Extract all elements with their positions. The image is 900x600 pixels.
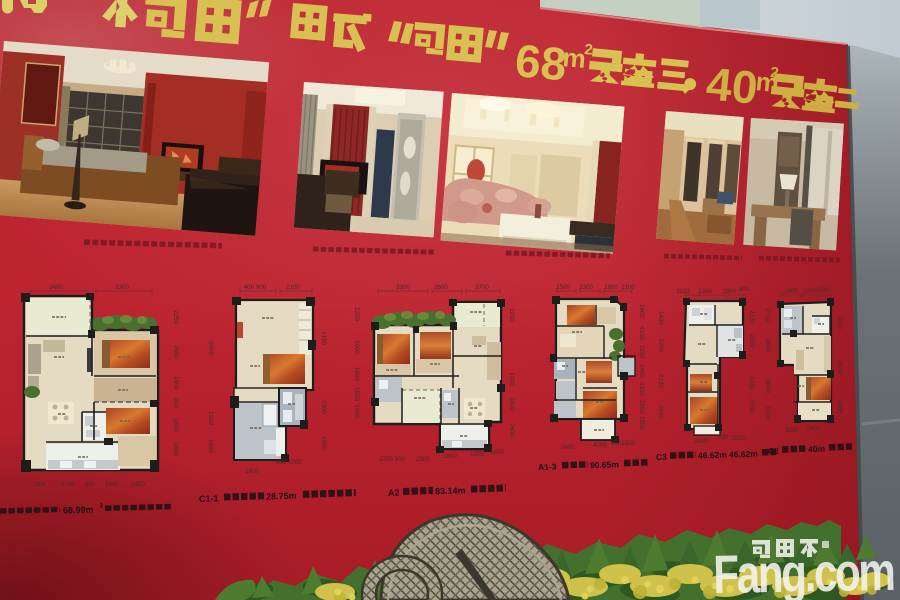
svg-text:1200: 1200 [785, 427, 799, 434]
svg-text:1300: 1300 [207, 411, 214, 425]
svg-text:8400: 8400 [836, 361, 843, 375]
svg-text:2250: 2250 [172, 310, 179, 324]
svg-text:2400: 2400 [694, 438, 708, 445]
svg-text:3400: 3400 [49, 284, 63, 291]
svg-text:3700: 3700 [475, 284, 489, 291]
svg-text:1800: 1800 [353, 367, 360, 381]
svg-text:900: 900 [172, 398, 179, 409]
svg-text:40m: 40m [808, 444, 826, 455]
svg-text:Fang.com: Fang.com [713, 542, 895, 600]
svg-text:2600: 2600 [508, 423, 515, 437]
svg-text:6001500: 6001500 [611, 440, 636, 447]
svg-text:4100: 4100 [638, 326, 645, 340]
svg-text:900: 900 [85, 481, 96, 488]
svg-text:83.14m: 83.14m [435, 485, 466, 496]
svg-text:4100: 4100 [320, 331, 327, 345]
svg-text:1400: 1400 [105, 481, 119, 488]
svg-text:2650: 2650 [748, 334, 755, 348]
svg-text:1500: 1500 [556, 284, 570, 291]
svg-text:2500: 2500 [416, 456, 430, 463]
svg-text:1500: 1500 [817, 287, 831, 294]
svg-text:3250: 3250 [657, 338, 664, 352]
svg-text:2400: 2400 [638, 364, 645, 378]
svg-text:2400: 2400 [561, 444, 575, 451]
svg-text:2200: 2200 [508, 308, 515, 322]
svg-text:68: 68 [513, 34, 569, 90]
svg-text:1500: 1500 [638, 416, 645, 430]
svg-text:1900: 1900 [722, 288, 736, 295]
svg-text:3400: 3400 [807, 425, 821, 432]
svg-text:1800: 1800 [353, 387, 360, 401]
svg-text:2130: 2130 [748, 376, 755, 390]
svg-text:2700: 2700 [764, 308, 771, 322]
svg-text:1800: 1800 [172, 442, 179, 456]
svg-text:2100: 2100 [621, 284, 635, 291]
svg-text:m: m [561, 42, 587, 74]
svg-text:600 1000: 600 1000 [276, 459, 302, 466]
svg-text:3300: 3300 [115, 284, 129, 291]
svg-text:2200: 2200 [836, 315, 843, 329]
svg-text:1200: 1200 [803, 288, 817, 295]
svg-text:C3: C3 [656, 452, 667, 462]
svg-text:90.65m: 90.65m [590, 459, 620, 470]
svg-text:2200: 2200 [353, 307, 360, 321]
svg-text:2300: 2300 [320, 400, 327, 414]
svg-text:3100: 3100 [638, 382, 645, 396]
svg-text:400 900: 400 900 [244, 284, 267, 291]
svg-text:68.99m: 68.99m [63, 505, 94, 516]
svg-text:2650: 2650 [748, 399, 755, 413]
svg-text:300: 300 [739, 286, 750, 293]
svg-text:700: 700 [718, 434, 729, 441]
svg-text:28.75m: 28.75m [266, 491, 297, 502]
svg-text:1800: 1800 [443, 453, 457, 460]
svg-text:C2: C2 [768, 446, 780, 456]
svg-text:A2: A2 [388, 488, 400, 498]
svg-text:1800: 1800 [604, 284, 618, 291]
svg-text:1600: 1600 [320, 436, 327, 450]
svg-text:1500: 1500 [731, 435, 745, 442]
svg-text:1900: 1900 [470, 451, 484, 458]
svg-text:1700 500: 1700 500 [379, 456, 405, 463]
svg-text:5000: 5000 [207, 341, 214, 355]
svg-text:2300: 2300 [579, 284, 593, 291]
svg-text:2600: 2600 [172, 345, 179, 359]
svg-text:2300: 2300 [698, 288, 712, 295]
svg-text:1800: 1800 [245, 468, 259, 475]
svg-text:3000: 3000 [353, 340, 360, 354]
svg-text:2100: 2100 [286, 284, 300, 291]
svg-text:1600: 1600 [207, 439, 214, 453]
svg-text:1200: 1200 [508, 372, 515, 386]
svg-text:1800: 1800 [764, 338, 771, 352]
svg-text:A1-3: A1-3 [538, 461, 557, 472]
svg-text:1400: 1400 [490, 449, 504, 456]
svg-text:2600: 2600 [434, 284, 448, 291]
svg-text:46.62m: 46.62m [698, 450, 728, 461]
svg-text:1400: 1400 [657, 311, 664, 325]
svg-text:1300: 1300 [172, 376, 179, 390]
svg-text:2400: 2400 [508, 397, 515, 411]
svg-text:4200: 4200 [593, 442, 607, 449]
svg-text:2650: 2650 [657, 405, 664, 419]
svg-text:3300: 3300 [396, 284, 410, 291]
svg-text:1400: 1400 [131, 481, 145, 488]
svg-text:46.62m: 46.62m [729, 449, 759, 460]
svg-text:40: 40 [704, 57, 760, 114]
svg-text:1700: 1700 [61, 481, 75, 488]
svg-text:2650: 2650 [638, 400, 645, 414]
svg-text:1800: 1800 [172, 418, 179, 432]
svg-text:1100: 1100 [676, 288, 690, 295]
svg-text:2: 2 [584, 41, 594, 59]
svg-text:1800: 1800 [836, 400, 843, 414]
svg-text:3800: 3800 [764, 379, 771, 393]
svg-text:1800: 1800 [784, 288, 798, 295]
svg-text:1600: 1600 [764, 406, 771, 420]
svg-text:2250: 2250 [638, 345, 645, 359]
svg-text:2130: 2130 [748, 310, 755, 324]
svg-text:C1-1: C1-1 [199, 493, 219, 504]
svg-text:1600: 1600 [638, 304, 645, 318]
svg-text:1300: 1300 [32, 481, 46, 488]
svg-text:1600: 1600 [353, 404, 360, 418]
svg-text:2130: 2130 [657, 374, 664, 388]
